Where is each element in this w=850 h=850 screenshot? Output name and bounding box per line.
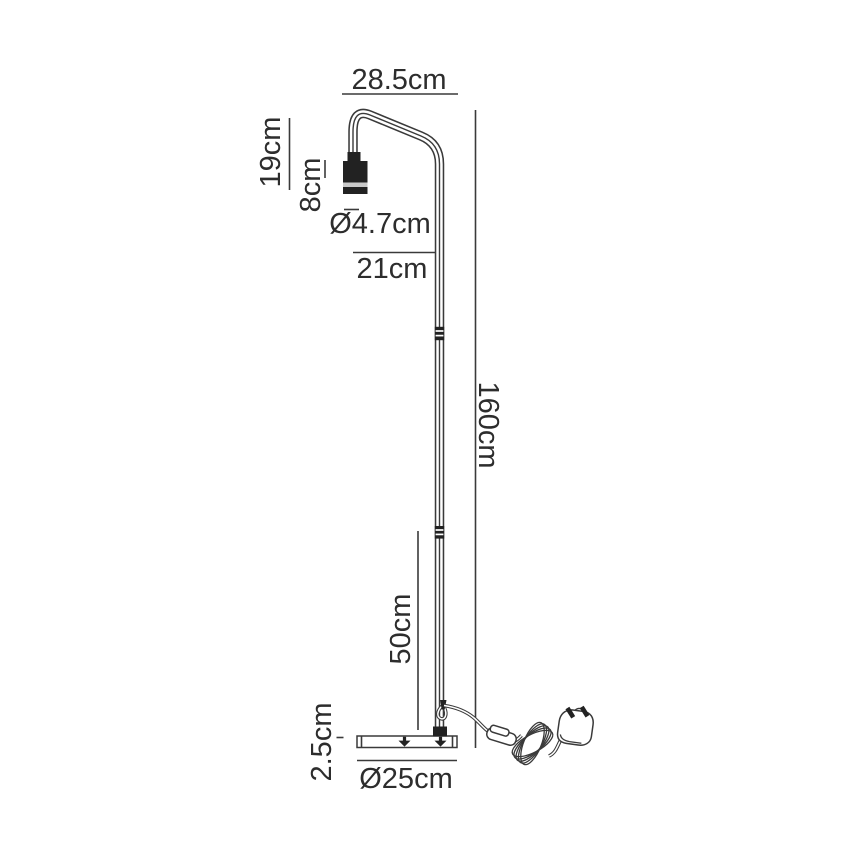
pole-joint-lower	[435, 526, 444, 539]
cord-run-1	[444, 706, 489, 732]
cord-coil	[509, 719, 557, 767]
lamp-dimension-drawing: 28.5cm 19cm 8cm Ø4.7cm 21cm 160cm 50cm 2…	[0, 0, 850, 850]
dim-label-base-diameter: Ø25cm	[359, 763, 452, 795]
lamp-socket	[343, 152, 368, 194]
base-mount-block	[433, 727, 447, 737]
dim-label-arm-projection: 21cm	[357, 253, 428, 285]
uk-plug	[556, 703, 595, 747]
inline-switch	[485, 724, 518, 747]
dim-label-overall-height: 160cm	[472, 381, 504, 468]
pole-joint-upper	[435, 327, 444, 340]
diagram-canvas: 28.5cm 19cm 8cm Ø4.7cm 21cm 160cm 50cm 2…	[0, 0, 850, 850]
socket-band	[343, 183, 368, 188]
dim-label-socket-height: 8cm	[295, 158, 327, 213]
dim-label-arm-width: 28.5cm	[351, 64, 446, 96]
dim-label-lower-pole: 50cm	[385, 594, 417, 665]
socket-neck	[348, 152, 361, 162]
socket-body	[343, 161, 368, 194]
plug-body	[556, 708, 594, 746]
dim-label-base-thickness: 2.5cm	[306, 703, 338, 782]
dim-label-socket-diameter: Ø4.7cm	[329, 208, 431, 240]
dim-label-head-height: 19cm	[255, 117, 287, 188]
